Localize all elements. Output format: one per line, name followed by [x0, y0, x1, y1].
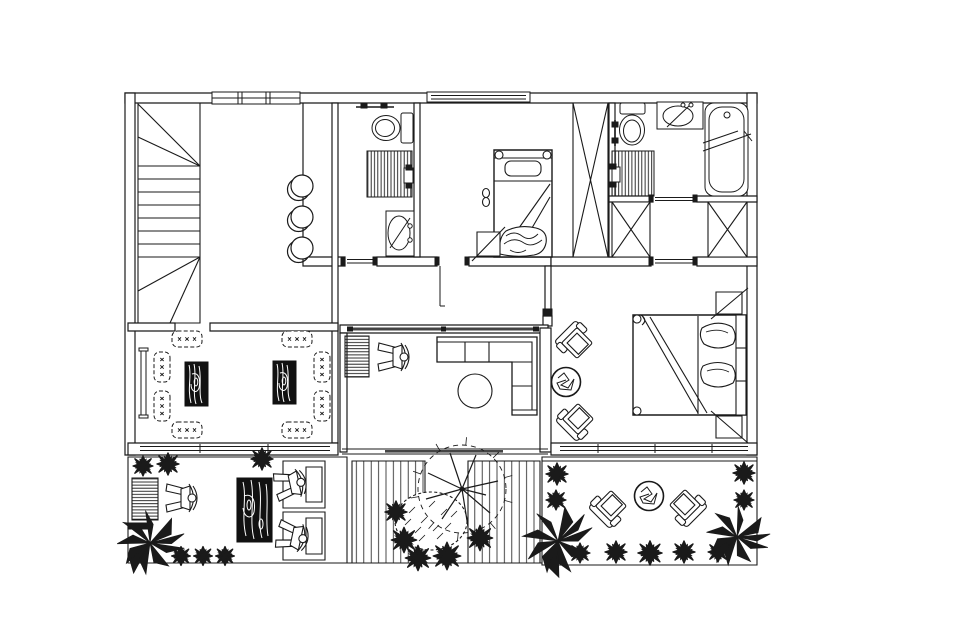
- terrace-right: [519, 457, 779, 582]
- wardrobe-icon: [573, 103, 608, 257]
- window-living-bottom: [342, 449, 548, 454]
- wall-bath1-dining: [332, 103, 338, 443]
- pillow-icon: [505, 161, 541, 176]
- terrace-left: [108, 448, 347, 587]
- wall-left: [125, 93, 135, 455]
- shrub-icon: [216, 547, 235, 566]
- bedroom-1: [472, 103, 608, 261]
- floor-lounge: [139, 331, 330, 438]
- round-stool-icon: [288, 175, 314, 201]
- double-bed-icon: [633, 315, 746, 415]
- vanity-sink-icon: [657, 102, 703, 129]
- wall-master-bottom: [551, 443, 757, 455]
- shrub-icon: [467, 525, 492, 550]
- armchair-icon: [166, 484, 197, 512]
- nightstand-icon: [711, 411, 748, 443]
- single-bed-icon: [494, 150, 552, 257]
- window-bedroom1-top: [427, 92, 530, 102]
- window-triple-top: [212, 92, 300, 104]
- round-stool-icon: [288, 206, 314, 232]
- shrub-icon: [405, 545, 430, 570]
- armchair-icon: [587, 486, 631, 530]
- lounge-chair-icon: [554, 399, 598, 443]
- shrub-icon: [673, 541, 695, 563]
- bathtub-icon: [703, 103, 752, 196]
- shrub-icon: [433, 542, 461, 570]
- staircase: [138, 103, 200, 323]
- shower-icon: [610, 151, 654, 196]
- leafy-plant-icon: [695, 497, 779, 581]
- deck-chair-rug: [274, 512, 325, 560]
- deck-chair-rug: [272, 461, 325, 508]
- wood-table-icon: [237, 478, 272, 542]
- headboard: [736, 315, 746, 415]
- bathroom-1: [356, 103, 414, 256]
- armchair-icon: [665, 485, 709, 529]
- wall-master-west: [545, 266, 551, 310]
- shrub-icon: [251, 448, 273, 470]
- shrub-icon: [385, 501, 407, 523]
- wall-lounge-bottom: [128, 443, 338, 455]
- dressing-area: [612, 202, 747, 257]
- toilet-icon: [372, 113, 413, 143]
- armchair-icon: [378, 343, 409, 371]
- toilet-icon: [620, 103, 646, 145]
- wardrobe-icon: [612, 202, 650, 257]
- floor-plan-page: [0, 0, 958, 641]
- master-bedroom: [552, 288, 749, 443]
- bedside-stool-icon: [472, 227, 505, 261]
- shrub-icon: [733, 462, 755, 484]
- crumpled-blanket-icon: [500, 227, 547, 257]
- living-room: [345, 336, 537, 415]
- round-coffee-table-icon: [458, 374, 492, 408]
- lounge-chair-icon: [553, 319, 597, 363]
- deck-chair-icon: [272, 468, 308, 502]
- shrub-icon: [194, 547, 213, 566]
- round-side-table-icon: [552, 368, 581, 397]
- hallway: [288, 175, 314, 263]
- wood-table-icon: [185, 362, 208, 406]
- towel-bar-icon: [356, 103, 394, 108]
- shrub-icon: [391, 527, 416, 552]
- pedestal-sink-icon: [386, 211, 414, 256]
- shrub-icon: [133, 456, 153, 476]
- shrub-icon: [546, 490, 566, 510]
- deck-chair-icon: [274, 520, 310, 554]
- bathroom-2: [610, 102, 752, 196]
- floor-plan-drawing: [0, 0, 958, 641]
- tv-cabinet-icon: [345, 336, 369, 377]
- wardrobe-icon: [708, 202, 747, 257]
- tv-cabinet-icon: [132, 478, 158, 520]
- round-table-icon: [635, 482, 664, 511]
- shrub-icon: [638, 541, 662, 565]
- wall-console-icon: [139, 348, 148, 418]
- shrub-icon: [734, 490, 754, 510]
- shrub-icon: [157, 453, 179, 475]
- courtyard-garden: [347, 437, 542, 570]
- floor-cushions: [154, 331, 330, 438]
- shrub-icon: [605, 541, 627, 563]
- slippers-icon: [483, 189, 490, 207]
- wood-table-icon: [273, 361, 296, 404]
- shower-icon: [367, 151, 413, 197]
- nightstand-icon: [711, 288, 748, 319]
- shrub-icon: [546, 463, 568, 485]
